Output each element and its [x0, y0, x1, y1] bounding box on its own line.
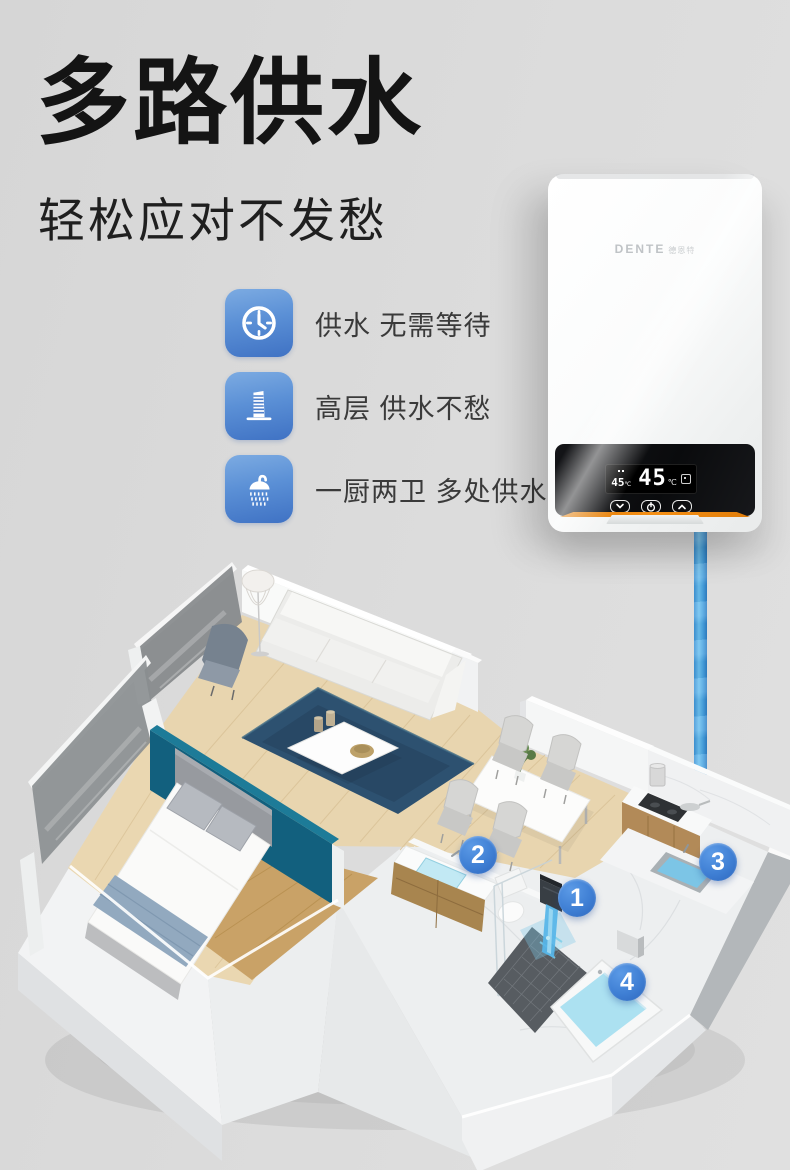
set-temp: 45	[611, 476, 624, 489]
floorplan-illustration	[0, 560, 790, 1170]
power-button[interactable]	[641, 500, 661, 513]
brand-logo: DENTE德恩特	[548, 240, 762, 258]
control-panel: 45℃ 45℃	[555, 444, 755, 516]
control-buttons	[551, 500, 751, 513]
page-subtitle: 轻松应对不发愁	[38, 182, 388, 251]
panel-handle	[606, 515, 704, 524]
marker-bathtub: 4	[608, 963, 646, 1001]
page: 多路供水 轻松应对不发愁 供水 无需等待	[0, 0, 790, 1170]
feature-label: 一厨两卫 多处供水	[315, 470, 548, 509]
water-heater: DENTE德恩特 45℃ 45℃	[548, 174, 762, 532]
temp-up-button[interactable]	[672, 500, 692, 513]
heating-icon	[681, 474, 691, 484]
mode-dots	[618, 470, 624, 472]
clock-icon	[225, 289, 293, 357]
temperature-display: 45℃ 45℃	[605, 464, 697, 494]
marker-shower: 1	[558, 879, 596, 917]
temp-down-button[interactable]	[610, 500, 630, 513]
feature-list: 供水 无需等待 高层 供水不愁	[225, 289, 548, 538]
marker-kitchen-sink: 3	[699, 843, 737, 881]
feature-label: 高层 供水不愁	[315, 387, 492, 426]
feature-row-multipoint: 一厨两卫 多处供水	[225, 455, 548, 523]
feature-label: 供水 无需等待	[315, 304, 492, 343]
feature-row-highrise: 高层 供水不愁	[225, 372, 548, 440]
page-title: 多路供水	[36, 56, 424, 150]
shower-icon	[225, 455, 293, 523]
feature-row-supply: 供水 无需等待	[225, 289, 548, 357]
building-icon	[225, 372, 293, 440]
marker-bathroom-sink: 2	[459, 836, 497, 874]
out-temp: 45	[638, 468, 667, 490]
